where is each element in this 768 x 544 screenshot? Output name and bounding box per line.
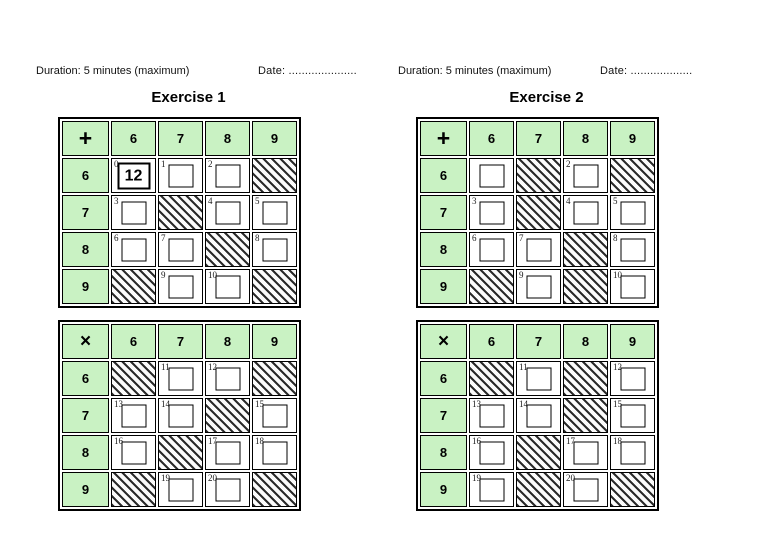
- answer-cell: 2: [205, 158, 250, 193]
- hatched-cell: [563, 361, 608, 396]
- answer-cell: 18: [610, 435, 655, 470]
- answer-cell: 6: [469, 232, 514, 267]
- row-header: 8: [420, 232, 467, 267]
- hatched-cell: [516, 472, 561, 507]
- answer-box: [215, 479, 240, 502]
- answer-box: [620, 442, 645, 465]
- duration-label: Duration: 5 minutes (maximum): [36, 65, 189, 77]
- row-header: 6: [420, 158, 467, 193]
- question-number-label: 6: [472, 233, 477, 244]
- addition-operator-cell: +: [62, 121, 109, 156]
- multiplication-table: ×6789611127131415816171891920: [416, 320, 659, 511]
- row-header: 9: [420, 269, 467, 304]
- answer-cell: 12: [610, 361, 655, 396]
- hatched-cell: [610, 472, 655, 507]
- answer-box: [573, 442, 598, 465]
- answer-cell: 15: [252, 398, 297, 433]
- hatched-cell: [158, 195, 203, 230]
- question-number-label: 7: [161, 233, 166, 244]
- answer-box: [121, 239, 146, 262]
- answer-box: [168, 479, 193, 502]
- row-header: 8: [62, 232, 109, 267]
- question-number-label: 8: [255, 233, 260, 244]
- hatched-cell: [563, 398, 608, 433]
- answer-cell: 19: [158, 472, 203, 507]
- exercise-1-multiplication-grid: ×6789611127131415816171891920: [58, 320, 301, 511]
- column-header: 6: [469, 324, 514, 359]
- answer-cell: 11: [158, 361, 203, 396]
- answer-cell: 10: [610, 269, 655, 304]
- answer-cell: 8: [610, 232, 655, 267]
- answer-box: [620, 405, 645, 428]
- answer-cell: 13: [469, 398, 514, 433]
- exercise-title: Exercise 2: [424, 89, 669, 106]
- answer-cell: 20: [205, 472, 250, 507]
- answer-box: [479, 202, 504, 225]
- column-header: 6: [111, 324, 156, 359]
- answer-box: [526, 276, 551, 299]
- question-number-label: 1: [161, 159, 166, 170]
- row-header: 8: [62, 435, 109, 470]
- answer-box: [526, 368, 551, 391]
- answer-box: [215, 442, 240, 465]
- multiplication-table: ×6789611127131415816171891920: [58, 320, 301, 511]
- answer-cell: 14: [158, 398, 203, 433]
- answer-box: [262, 202, 287, 225]
- answer-cell: 20: [563, 472, 608, 507]
- hatched-cell: [563, 269, 608, 304]
- answer-box: [479, 405, 504, 428]
- answer-box: [262, 405, 287, 428]
- column-header: 9: [610, 121, 655, 156]
- answer-box: [215, 202, 240, 225]
- question-number-label: 5: [613, 196, 618, 207]
- answer-cell: 4: [205, 195, 250, 230]
- answer-cell: 17: [205, 435, 250, 470]
- row-header: 6: [62, 361, 109, 396]
- question-number-label: 5: [255, 196, 260, 207]
- answer-cell: 13: [111, 398, 156, 433]
- question-number-label: 3: [472, 196, 477, 207]
- answer-cell: 15: [610, 398, 655, 433]
- question-number-label: 8: [613, 233, 618, 244]
- answer-cell: 3: [469, 195, 514, 230]
- row-header: 6: [420, 361, 467, 396]
- answer-box: [121, 405, 146, 428]
- column-header: 7: [516, 324, 561, 359]
- answer-box: [573, 165, 598, 188]
- answer-cell: 3: [111, 195, 156, 230]
- hatched-cell: [516, 195, 561, 230]
- row-header: 7: [420, 398, 467, 433]
- answer-cell: 9: [516, 269, 561, 304]
- answer-box: [526, 405, 551, 428]
- answer-cell: [469, 158, 514, 193]
- column-header: 9: [252, 324, 297, 359]
- hatched-cell: [111, 361, 156, 396]
- column-header: 6: [111, 121, 156, 156]
- answer-box: [121, 202, 146, 225]
- answer-box: [168, 165, 193, 188]
- exercise-2-addition-grid: +678962734586789910: [416, 117, 659, 308]
- answer-cell: 7: [158, 232, 203, 267]
- worksheet-page: Duration: 5 minutes (maximum) Date: ....…: [0, 0, 768, 544]
- hatched-cell: [252, 361, 297, 396]
- answer-box: [121, 442, 146, 465]
- hatched-cell: [205, 232, 250, 267]
- answer-box: [168, 405, 193, 428]
- row-header: 9: [62, 472, 109, 507]
- question-number-label: 4: [208, 196, 213, 207]
- column-header: 8: [563, 324, 608, 359]
- hatched-cell: [205, 398, 250, 433]
- answer-cell: 6: [111, 232, 156, 267]
- column-header: 9: [610, 324, 655, 359]
- hatched-cell: [158, 435, 203, 470]
- addition-table: +678962734586789910: [416, 117, 659, 308]
- answer-box: [479, 165, 504, 188]
- column-header: 9: [252, 121, 297, 156]
- question-number-label: 4: [566, 196, 571, 207]
- answer-box: [262, 442, 287, 465]
- answer-box: [479, 479, 504, 502]
- column-header: 7: [158, 324, 203, 359]
- answer-cell: 012: [111, 158, 156, 193]
- hatched-cell: [111, 472, 156, 507]
- column-header: 7: [516, 121, 561, 156]
- answer-box: [526, 239, 551, 262]
- exercise-2-section: Duration: 5 minutes (maximum) Date: ....…: [398, 62, 730, 542]
- column-header: 6: [469, 121, 514, 156]
- row-header: 8: [420, 435, 467, 470]
- answer-cell: 16: [469, 435, 514, 470]
- hatched-cell: [252, 269, 297, 304]
- column-header: 8: [205, 121, 250, 156]
- row-header: 9: [62, 269, 109, 304]
- answer-box: [479, 442, 504, 465]
- answer-box: [215, 368, 240, 391]
- answer-box: [215, 276, 240, 299]
- row-header: 7: [62, 195, 109, 230]
- answer-cell: 7: [516, 232, 561, 267]
- answer-cell: 19: [469, 472, 514, 507]
- question-number-label: 2: [566, 159, 571, 170]
- answer-box: [620, 202, 645, 225]
- row-header: 6: [62, 158, 109, 193]
- hatched-cell: [516, 158, 561, 193]
- multiplication-operator-cell: ×: [62, 324, 109, 359]
- answer-box: [262, 239, 287, 262]
- hatched-cell: [563, 232, 608, 267]
- addition-operator-cell: +: [420, 121, 467, 156]
- question-number-label: 3: [114, 196, 119, 207]
- answer-box: [620, 368, 645, 391]
- date-label: Date: ...................: [600, 65, 692, 77]
- row-header: 7: [62, 398, 109, 433]
- answer-cell: 1: [158, 158, 203, 193]
- answer-box: [479, 239, 504, 262]
- addition-table: +6789601212734586789910: [58, 117, 301, 308]
- column-header: 8: [205, 324, 250, 359]
- answer-cell: 14: [516, 398, 561, 433]
- answer-box: [620, 239, 645, 262]
- column-header: 7: [158, 121, 203, 156]
- answer-cell: 18: [252, 435, 297, 470]
- hatched-cell: [516, 435, 561, 470]
- question-number-label: 6: [114, 233, 119, 244]
- column-header: 8: [563, 121, 608, 156]
- answer-cell: 2: [563, 158, 608, 193]
- question-number-label: 7: [519, 233, 524, 244]
- question-number-label: 9: [161, 270, 166, 281]
- question-number-label: 2: [208, 159, 213, 170]
- answer-box: [168, 276, 193, 299]
- exercise-2-meta-row: Duration: 5 minutes (maximum) Date: ....…: [398, 62, 730, 78]
- answer-box: [620, 276, 645, 299]
- row-header: 7: [420, 195, 467, 230]
- duration-label: Duration: 5 minutes (maximum): [398, 65, 551, 77]
- answer-cell: 4: [563, 195, 608, 230]
- answer-box: [573, 202, 598, 225]
- exercise-1-addition-grid: +6789601212734586789910: [58, 117, 301, 308]
- date-label: Date: .....................: [258, 65, 357, 77]
- answer-cell: 16: [111, 435, 156, 470]
- answer-box: [215, 165, 240, 188]
- exercise-1-meta-row: Duration: 5 minutes (maximum) Date: ....…: [36, 62, 368, 78]
- hatched-cell: [469, 361, 514, 396]
- question-number-label: 9: [519, 270, 524, 281]
- answer-cell: 12: [205, 361, 250, 396]
- answer-cell: 8: [252, 232, 297, 267]
- answer-box: [573, 479, 598, 502]
- multiplication-operator-cell: ×: [420, 324, 467, 359]
- answer-box: [168, 239, 193, 262]
- hatched-cell: [252, 472, 297, 507]
- answer-cell: 9: [158, 269, 203, 304]
- answer-cell: 10: [205, 269, 250, 304]
- hatched-cell: [469, 269, 514, 304]
- answer-cell: 5: [610, 195, 655, 230]
- example-answer-box: 12: [117, 163, 150, 190]
- answer-cell: 11: [516, 361, 561, 396]
- answer-box: [168, 368, 193, 391]
- hatched-cell: [610, 158, 655, 193]
- hatched-cell: [252, 158, 297, 193]
- exercise-title: Exercise 1: [66, 89, 311, 106]
- hatched-cell: [111, 269, 156, 304]
- exercise-1-section: Duration: 5 minutes (maximum) Date: ....…: [36, 62, 368, 542]
- row-header: 9: [420, 472, 467, 507]
- answer-cell: 5: [252, 195, 297, 230]
- exercise-2-multiplication-grid: ×6789611127131415816171891920: [416, 320, 659, 511]
- answer-cell: 17: [563, 435, 608, 470]
